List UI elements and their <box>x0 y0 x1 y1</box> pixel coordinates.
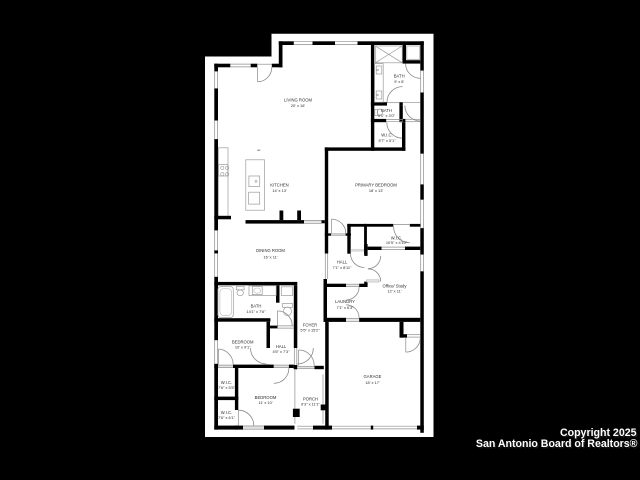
svg-text:9' x 8': 9' x 8' <box>394 79 404 84</box>
svg-text:DINING ROOM: DINING ROOM <box>256 248 285 253</box>
svg-text:HALL: HALL <box>337 260 348 265</box>
svg-text:5'1" x 3'0": 5'1" x 3'0" <box>378 113 396 118</box>
svg-text:BATH: BATH <box>394 74 405 79</box>
svg-text:San Antonio Board of Realtors®: San Antonio Board of Realtors® <box>476 438 638 450</box>
svg-text:10'5" x 4'10": 10'5" x 4'10" <box>386 240 408 245</box>
svg-text:20' x 16': 20' x 16' <box>291 103 306 108</box>
svg-text:4'5" x 7'3": 4'5" x 7'3" <box>272 349 290 354</box>
svg-text:9'3" x 11'1": 9'3" x 11'1" <box>301 402 321 407</box>
svg-text:7'6" x 5'5": 7'6" x 5'5" <box>218 385 236 390</box>
svg-text:16' x 11': 16' x 11' <box>264 254 278 259</box>
svg-text:PORCH: PORCH <box>303 396 318 401</box>
svg-text:GARAGE: GARAGE <box>364 374 382 379</box>
svg-text:11' x 10': 11' x 10' <box>259 400 273 405</box>
svg-text:W.I.C.: W.I.C. <box>381 133 392 138</box>
svg-text:7'1" x 6'3": 7'1" x 6'3" <box>336 305 354 310</box>
svg-text:LAUNDRY: LAUNDRY <box>335 299 355 304</box>
svg-text:PRIMARY BEDROOM: PRIMARY BEDROOM <box>355 183 397 188</box>
svg-text:12' x 11': 12' x 11' <box>388 288 402 293</box>
svg-text:7'6" x 6'1": 7'6" x 6'1" <box>218 415 236 420</box>
svg-text:14'1" x 7'6": 14'1" x 7'6" <box>246 309 266 314</box>
svg-text:5'7" x 5'1": 5'7" x 5'1" <box>378 138 396 143</box>
svg-text:14' x 13': 14' x 13' <box>272 188 287 193</box>
svg-text:KITCHEN: KITCHEN <box>270 183 288 188</box>
svg-text:18' x 17': 18' x 17' <box>365 380 380 385</box>
svg-text:5'5" x 15'2": 5'5" x 15'2" <box>300 328 320 333</box>
svg-text:18' x 13': 18' x 13' <box>369 188 384 193</box>
svg-text:10' x 9'1": 10' x 9'1" <box>235 345 251 350</box>
svg-text:7'1" x 8'11": 7'1" x 8'11" <box>333 265 353 270</box>
